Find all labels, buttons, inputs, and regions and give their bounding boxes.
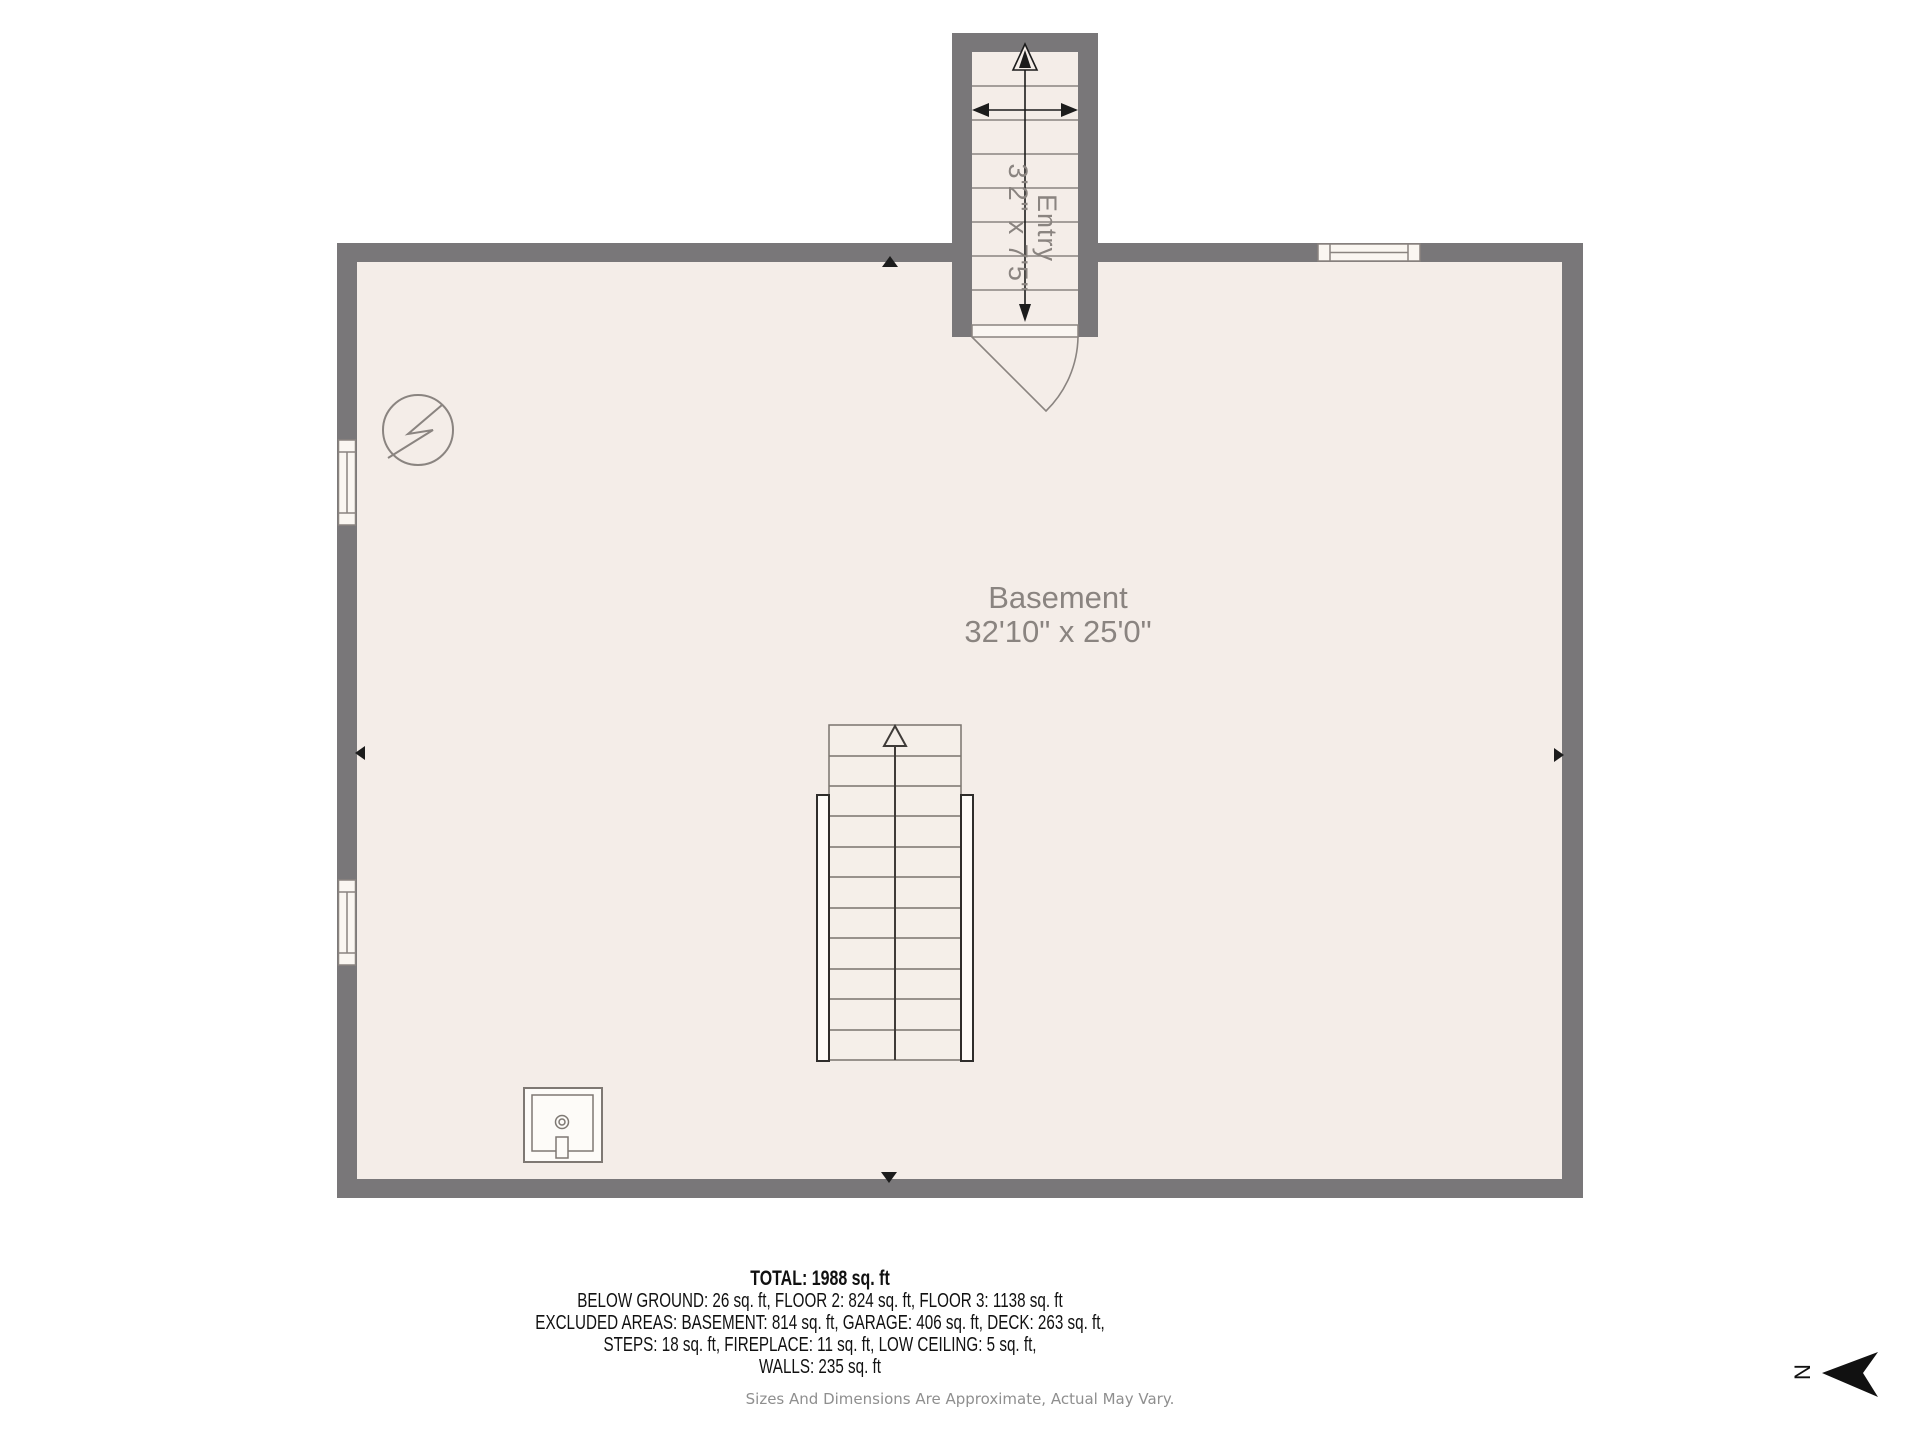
floorplan-drawing bbox=[0, 0, 1920, 1440]
left-wall-window-lower bbox=[339, 880, 356, 965]
entry-wall-left bbox=[952, 33, 972, 337]
area-summary: TOTAL: 1988 sq. ft BELOW GROUND: 26 sq. … bbox=[320, 1268, 1320, 1378]
top-wall-window bbox=[1318, 244, 1420, 261]
basement-room-dimensions: 32'10" x 25'0" bbox=[808, 615, 1308, 649]
wall-bottom bbox=[337, 1179, 1583, 1198]
stair-rail-left bbox=[817, 795, 829, 1061]
wall-right bbox=[1562, 243, 1583, 1198]
wall-left bbox=[337, 243, 357, 1198]
entry-wall-right bbox=[1078, 33, 1098, 337]
summary-walls: WALLS: 235 sq. ft bbox=[440, 1356, 1200, 1378]
north-label: N bbox=[1789, 1358, 1817, 1386]
basement-room-name: Basement bbox=[808, 581, 1308, 615]
entry-room-label: Entry 3'2" x 7'5" bbox=[1003, 108, 1061, 348]
stair-rail-right bbox=[961, 795, 973, 1061]
basement-room-label: Basement 32'10" x 25'0" bbox=[808, 581, 1308, 649]
utility-sink-icon bbox=[524, 1088, 602, 1162]
disclaimer-text: Sizes And Dimensions Are Approximate, Ac… bbox=[0, 1390, 1920, 1408]
summary-excluded-2: STEPS: 18 sq. ft, FIREPLACE: 11 sq. ft, … bbox=[440, 1334, 1200, 1356]
summary-excluded-1: EXCLUDED AREAS: BASEMENT: 814 sq. ft, GA… bbox=[440, 1312, 1200, 1334]
left-wall-window-upper bbox=[339, 440, 356, 525]
main-staircase bbox=[817, 725, 973, 1061]
summary-total: TOTAL: 1988 sq. ft bbox=[440, 1268, 1200, 1290]
entry-room-name: Entry bbox=[1032, 108, 1061, 348]
entry-room-dimensions: 3'2" x 7'5" bbox=[1003, 108, 1032, 348]
summary-floors: BELOW GROUND: 26 sq. ft, FLOOR 2: 824 sq… bbox=[440, 1290, 1200, 1312]
